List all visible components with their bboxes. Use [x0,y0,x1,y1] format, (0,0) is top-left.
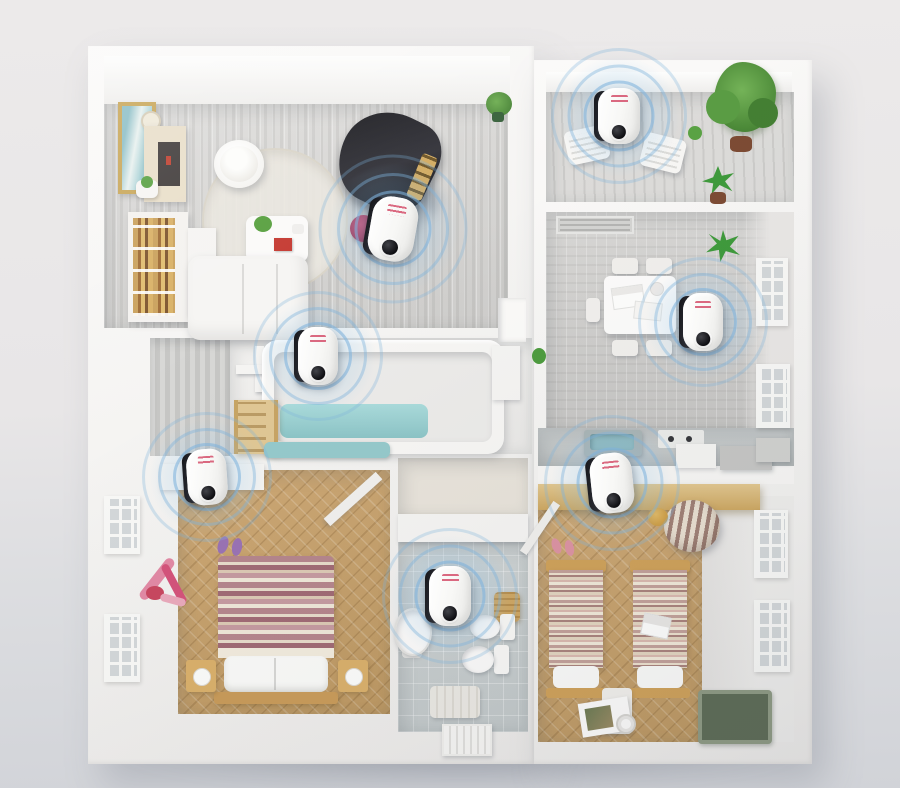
nightstand [186,660,216,692]
white-dish [292,224,304,234]
side-table [136,180,158,198]
device-logo [602,460,620,471]
device-logo [442,574,459,583]
sofa-cushion-seam [242,264,244,334]
bed-footboard [214,692,338,704]
scene [0,0,900,788]
plant-pot [730,136,752,152]
device-body [185,448,229,507]
red-book [274,238,292,251]
device-logo [198,456,215,465]
double-bed [218,556,334,702]
cabinet-display-accent [166,156,171,165]
device-speaker-icon [612,125,626,139]
toilet-entry-floor [398,458,528,516]
kids-bedroom-window [754,600,790,672]
table-lamp [345,668,363,686]
device-speaker-icon [381,238,399,256]
device-speaker-icon [696,332,710,346]
dining-chair [612,258,638,274]
magazine-photo [585,705,614,731]
device-body [598,88,640,144]
bed-pillow [553,666,599,688]
device-speaker-icon [201,486,216,501]
bed-blanket [218,556,334,650]
device-speaker-icon [443,606,457,620]
device-logo [387,204,407,217]
twin-bed [630,560,690,700]
table-lamp [193,668,211,686]
plant-foliage [706,90,740,124]
device-speaker-icon [606,493,622,509]
outlet-dot [686,436,692,442]
table-plant [254,216,272,232]
bed-pillows [224,656,328,692]
plant-foliage [748,98,778,128]
device-body [588,451,636,515]
bed-pillow [637,666,683,688]
device-unit [429,566,471,626]
device-logo [611,95,628,103]
device-logo [695,301,711,310]
cd-disc [616,714,636,734]
dining-window [756,364,790,428]
living-room-north-wall-face [104,56,510,104]
device-unit [588,451,636,515]
teal-bath-mat [264,442,390,458]
exercise-bike [140,550,200,610]
bean-bag [214,140,264,188]
device-body [683,293,723,351]
bed-blanket [549,570,603,668]
device-body [429,566,471,626]
bath-mat [430,686,480,718]
aloe-pot [710,192,726,204]
radiator [442,724,492,756]
twin-bed [546,560,606,700]
device-unit [683,293,723,351]
device-logo [310,335,326,344]
living-room-door [498,298,526,342]
vent-slats [560,219,630,231]
kids-bedroom-window [754,510,788,578]
ceiling-vent [556,216,634,234]
device-body [298,327,338,385]
device-unit [298,327,338,385]
device-unit [598,88,640,144]
corner-plant-pot [492,112,504,122]
bookshelf-books [133,218,175,316]
side-table-plant [141,176,153,188]
large-potted-plant [706,62,780,158]
bed-footboard [546,688,606,698]
hall-cabinet [492,346,520,400]
device-unit [185,448,229,507]
bookshelf [128,212,188,322]
device-speaker-icon [311,366,325,380]
master-bedroom-window [104,614,140,682]
dining-stool [586,298,600,322]
master-bedroom-window [104,496,140,554]
tiny-wall-plant [532,348,546,364]
counter-cabinet [756,438,790,462]
bed-footboard [630,688,690,698]
pillow-divider [274,658,276,690]
green-rug [698,690,772,744]
nightstand [338,660,368,692]
